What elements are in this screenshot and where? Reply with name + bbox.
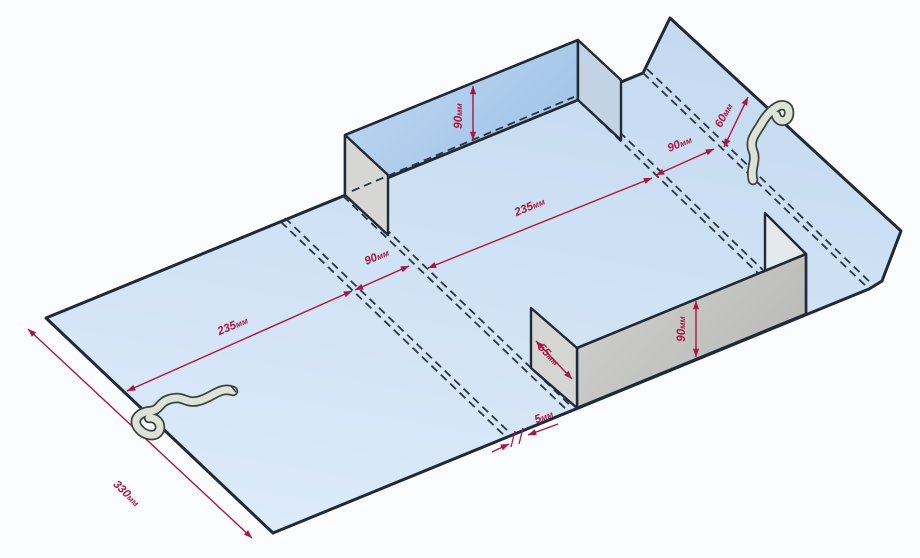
dim-gap-5-leader-left <box>492 444 509 452</box>
box-dieline-diagram: 90мм60мм90мм235мм90мм235мм330мм55мм90мм5… <box>0 0 920 558</box>
dieline-isometric-scene: 90мм60мм90мм235мм90мм235мм330мм55мм90мм5… <box>0 0 920 558</box>
dim-left-edge-330-label: 330мм <box>110 478 142 509</box>
dim-front-wall-height-label: 90мм <box>676 316 688 342</box>
dim-back-wall-height-label: 90мм <box>453 103 465 129</box>
